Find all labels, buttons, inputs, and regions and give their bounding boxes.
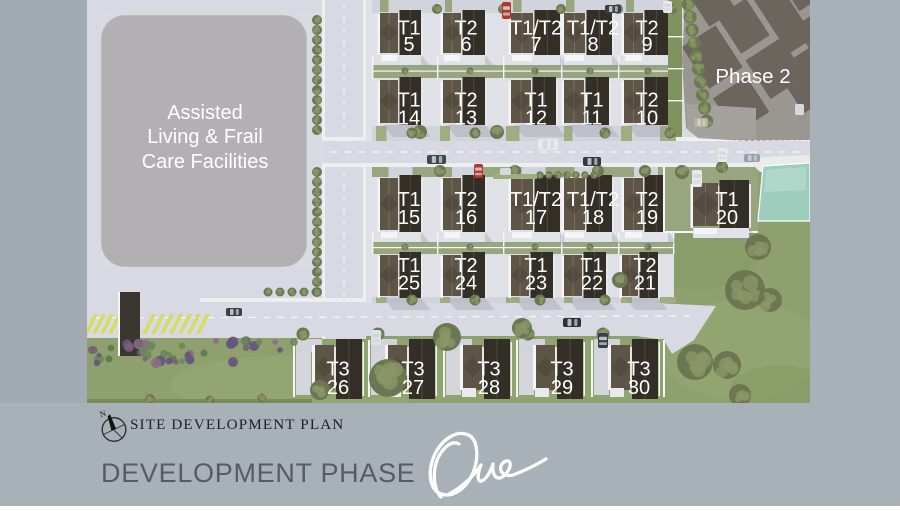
svg-text:12: 12 bbox=[525, 108, 547, 130]
svg-text:26: 26 bbox=[327, 377, 349, 399]
svg-text:SITE DEVELOPMENT PLAN: SITE DEVELOPMENT PLAN bbox=[130, 416, 344, 433]
svg-text:Phase 2: Phase 2 bbox=[715, 65, 790, 88]
svg-text:18: 18 bbox=[582, 207, 604, 229]
svg-text:8: 8 bbox=[587, 34, 598, 56]
svg-text:Care Facilities: Care Facilities bbox=[142, 151, 269, 173]
svg-text:22: 22 bbox=[581, 273, 603, 295]
svg-text:21: 21 bbox=[634, 273, 656, 295]
svg-text:28: 28 bbox=[478, 377, 500, 399]
svg-text:14: 14 bbox=[398, 108, 420, 130]
svg-text:30: 30 bbox=[628, 377, 650, 399]
svg-text:16: 16 bbox=[455, 207, 477, 229]
svg-text:25: 25 bbox=[398, 273, 420, 295]
svg-text:6: 6 bbox=[460, 34, 471, 56]
svg-text:Living & Frail: Living & Frail bbox=[147, 126, 263, 148]
svg-text:9: 9 bbox=[641, 34, 652, 56]
svg-text:19: 19 bbox=[636, 207, 658, 229]
svg-text:5: 5 bbox=[403, 34, 414, 56]
svg-text:15: 15 bbox=[398, 207, 420, 229]
svg-text:24: 24 bbox=[455, 273, 477, 295]
svg-text:27: 27 bbox=[402, 377, 424, 399]
svg-text:DEVELOPMENT PHASE: DEVELOPMENT PHASE bbox=[101, 458, 416, 488]
svg-text:17: 17 bbox=[525, 207, 547, 229]
svg-text:7: 7 bbox=[530, 34, 541, 56]
svg-text:23: 23 bbox=[525, 273, 547, 295]
svg-text:Assisted: Assisted bbox=[167, 102, 243, 124]
svg-text:13: 13 bbox=[455, 108, 477, 130]
svg-text:29: 29 bbox=[551, 377, 573, 399]
svg-text:10: 10 bbox=[636, 108, 658, 130]
svg-text:20: 20 bbox=[716, 207, 738, 229]
svg-text:11: 11 bbox=[582, 108, 603, 130]
